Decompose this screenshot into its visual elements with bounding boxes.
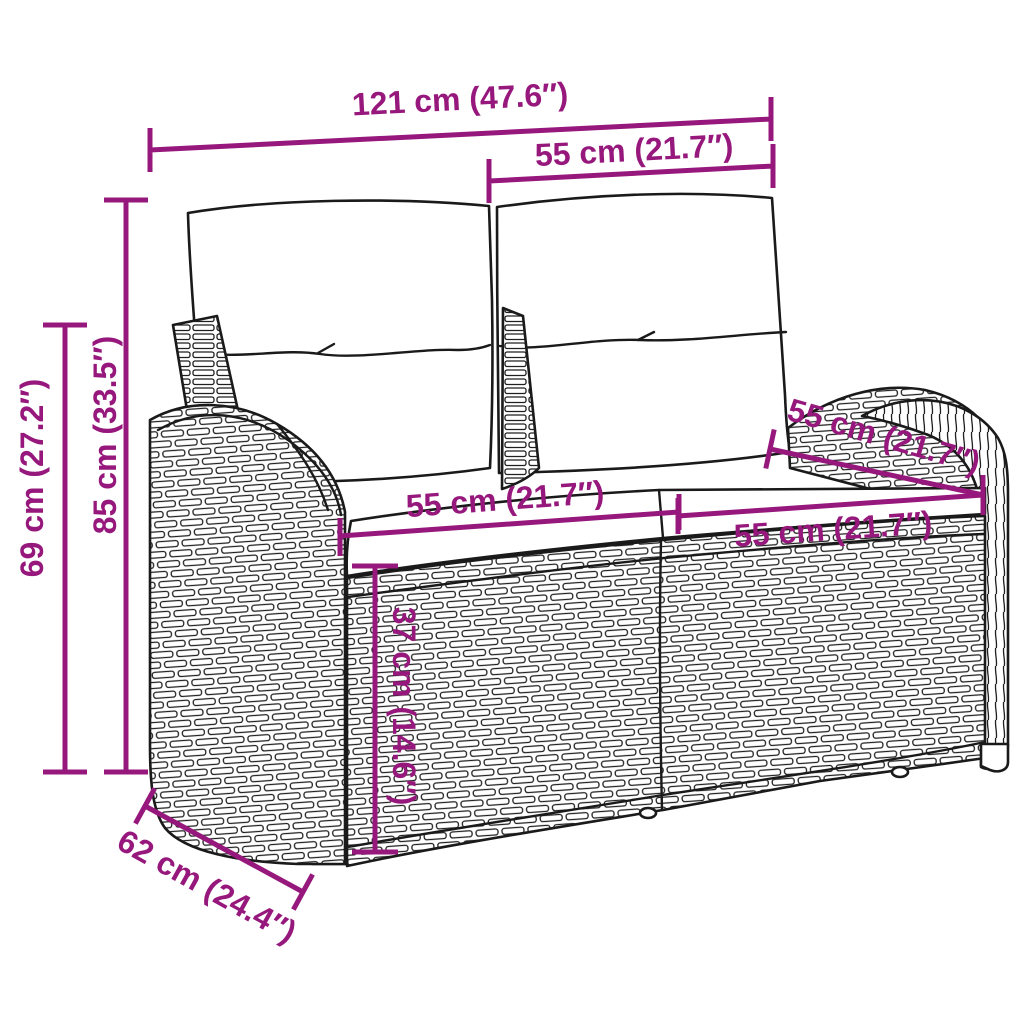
dimension-label: 69 cm (27.2″) — [14, 379, 50, 578]
dim-backrest-section-width: 55 cm (21.7″) — [489, 127, 773, 203]
back-cushion-right — [497, 194, 790, 473]
dimension-label: 85 cm (33.5″) — [87, 336, 123, 535]
product-dimension-diagram: 121 cm (47.6″) 55 cm (21.7″) 85 cm (33.5… — [0, 0, 1024, 1024]
diagram-canvas: 121 cm (47.6″) 55 cm (21.7″) 85 cm (33.5… — [0, 0, 1024, 1024]
base-front — [347, 516, 985, 866]
dimension-label: 37 cm (14.6″) — [386, 607, 422, 806]
dim-height-total: 85 cm (33.5″) — [87, 200, 148, 772]
dim-height-arm: 69 cm (27.2″) — [14, 325, 87, 772]
arm-left — [150, 405, 345, 864]
dimension-label: 55 cm (21.7″) — [534, 127, 734, 173]
dimension-label: 121 cm (47.6″) — [351, 76, 569, 123]
